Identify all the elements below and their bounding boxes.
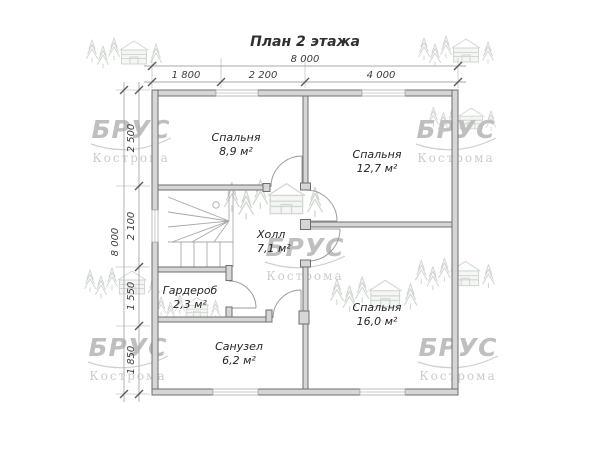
door-wardrobe	[229, 281, 256, 308]
window-bottom-1	[213, 389, 258, 395]
window-top-1	[216, 90, 258, 96]
wall-segment	[226, 266, 232, 281]
wall-segment	[301, 220, 311, 230]
room-name: Спальня	[212, 131, 261, 144]
wall-segment	[152, 90, 158, 210]
wall-segment	[263, 184, 270, 192]
door-bedroom-1	[271, 156, 302, 187]
wall-segment	[152, 242, 158, 395]
wall-segment	[258, 389, 360, 395]
forest-sketch	[419, 36, 494, 66]
dim-left-segment-1: 2 500	[126, 124, 137, 153]
window-top-2	[362, 90, 405, 96]
dim-top-segment-2: 2 200	[249, 70, 278, 81]
room-area: 8,9 м²	[219, 145, 253, 158]
plan-title: План 2 этажа	[250, 34, 360, 50]
wall-segment	[299, 311, 309, 324]
wall-segment	[152, 389, 213, 395]
window-left	[152, 210, 158, 242]
wall-segment	[303, 222, 452, 227]
room-name: Спальня	[353, 301, 402, 314]
dimensions-top: 8 000 1 800 2 200 4 000	[144, 54, 466, 88]
dim-top-total: 8 000	[291, 54, 320, 65]
forest-sketch	[87, 38, 162, 68]
forest-sketch	[85, 268, 160, 298]
wall-segment	[258, 90, 362, 96]
wall-segment	[405, 389, 458, 395]
floor-plan-page: БРУС Кострома БРУС Кострома БРУС Костром…	[0, 0, 600, 450]
door-bathroom	[273, 290, 301, 318]
brand-watermarks: БРУС Кострома БРУС Кострома БРУС Костром…	[88, 115, 498, 383]
room-area: 2,3 м²	[173, 298, 207, 311]
wall-segment	[158, 185, 270, 190]
room-area: 7,1 м²	[257, 242, 291, 255]
wall-segment	[158, 317, 272, 322]
room-name: Гардероб	[163, 284, 218, 297]
dim-left-segment-2: 2 100	[126, 212, 137, 241]
wall-segment	[158, 267, 226, 272]
room-area: 16,0 м²	[357, 315, 398, 328]
wall-segment	[301, 183, 311, 190]
dim-left-segment-4: 1 850	[126, 346, 137, 375]
wall-segment	[303, 262, 308, 389]
room-label-bedroom-1: Спальня 8,9 м²	[212, 131, 261, 158]
room-label-bedroom-3: Спальня 16,0 м²	[353, 301, 402, 328]
dim-left-total: 8 000	[110, 228, 121, 257]
door-bedroom-2	[306, 190, 337, 221]
room-name: Спальня	[353, 148, 402, 161]
room-name: Холл	[256, 228, 285, 241]
wall-segment	[405, 90, 458, 96]
stair-newel-post	[213, 202, 219, 208]
room-area: 12,7 м²	[357, 162, 398, 175]
wall-segment	[303, 96, 308, 190]
wall-segment	[266, 310, 272, 322]
window-bottom-2	[360, 389, 405, 395]
wall-segment	[301, 260, 311, 267]
dim-top-segment-3: 4 000	[367, 70, 396, 81]
dim-left-segment-3: 1 550	[126, 282, 137, 311]
room-area: 6,2 м²	[222, 354, 256, 367]
room-labels: Спальня 8,9 м² Спальня 12,7 м² Холл 7,1 …	[163, 131, 402, 367]
floor-plan-drawing: БРУС Кострома БРУС Кострома БРУС Костром…	[0, 0, 600, 450]
staircase	[168, 191, 233, 267]
wall-segment	[452, 90, 458, 395]
room-label-bathroom: Санузел 6,2 м²	[215, 340, 263, 367]
room-label-bedroom-2: Спальня 12,7 м²	[353, 148, 402, 175]
wall-segment	[152, 90, 216, 96]
room-name: Санузел	[215, 340, 263, 353]
dim-top-segment-1: 1 800	[172, 70, 201, 81]
